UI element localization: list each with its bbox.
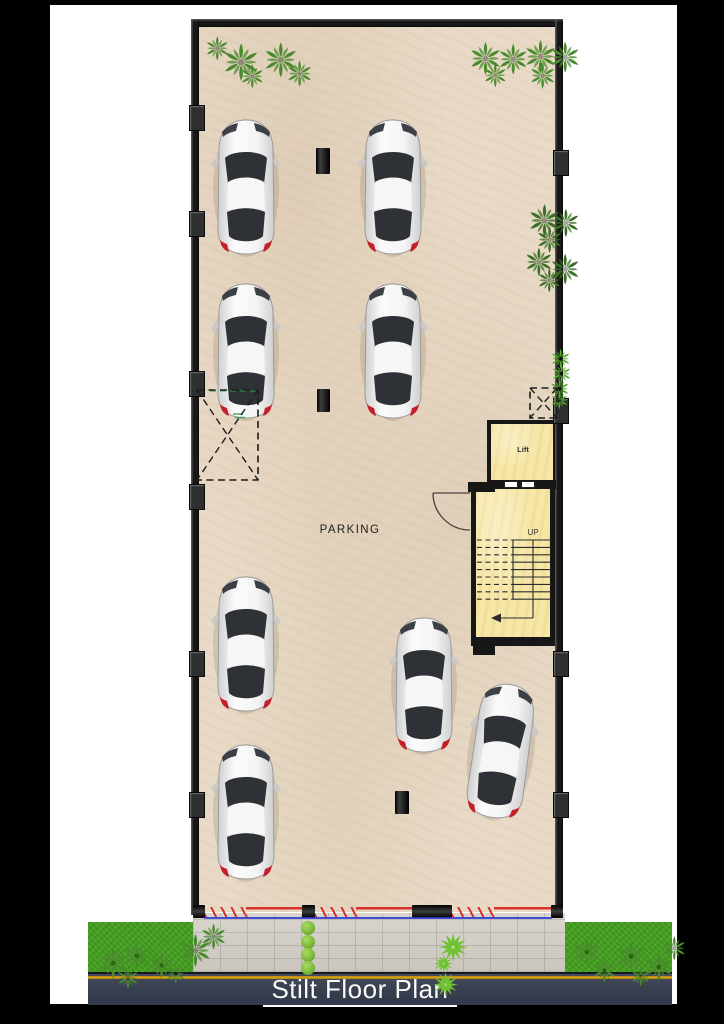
- wall-top: [191, 19, 563, 27]
- car-2: [359, 118, 427, 258]
- interior-column: [395, 791, 409, 814]
- up-label: UP: [521, 528, 545, 537]
- gate-post: [551, 905, 563, 918]
- wall-pilaster: [553, 651, 569, 677]
- lobby-jog-wall: [468, 482, 495, 492]
- wall-pilaster: [553, 792, 569, 818]
- wall-pilaster: [189, 484, 205, 510]
- car-3: [212, 282, 280, 422]
- gate-barrier: [452, 907, 551, 917]
- lift-door-leaf: [521, 481, 535, 488]
- wall-left: [191, 19, 199, 915]
- round-bush: [301, 935, 315, 949]
- grass-patch-right: [565, 922, 672, 972]
- wall-pilaster: [553, 150, 569, 176]
- grass-patch-left: [88, 922, 193, 972]
- wall-pilaster: [189, 105, 205, 131]
- lift-label: Lift: [503, 445, 543, 454]
- lift-door-leaf: [504, 481, 518, 488]
- driveway-pavers: [193, 913, 565, 972]
- stair-lobby: [471, 488, 556, 646]
- parking-label: PARKING: [300, 524, 400, 536]
- plan-title: Stilt Floor Plan: [263, 976, 456, 1006]
- car-1: [212, 118, 280, 258]
- lift-room: [487, 420, 557, 488]
- wall-pilaster: [189, 211, 205, 237]
- gate-barrier: [315, 907, 412, 917]
- road-strip: Stilt Floor Plan: [88, 972, 672, 1005]
- car-5: [212, 575, 280, 715]
- gate-barrier: [205, 907, 302, 917]
- round-bush: [301, 921, 315, 935]
- stair-stub-wall: [473, 644, 495, 655]
- wall-pilaster: [189, 371, 205, 397]
- wall-pilaster: [189, 792, 205, 818]
- car-4: [359, 282, 427, 422]
- round-bush: [301, 948, 315, 962]
- wall-pilaster: [189, 651, 205, 677]
- round-bush: [301, 961, 315, 975]
- canvas: Stilt Floor Plan: [0, 0, 724, 1024]
- entrance-blue-line: [204, 917, 552, 919]
- interior-column: [316, 148, 330, 174]
- car-7: [390, 616, 458, 756]
- interior-column: [317, 389, 330, 412]
- wall-pilaster: [553, 398, 569, 424]
- car-6: [212, 743, 280, 883]
